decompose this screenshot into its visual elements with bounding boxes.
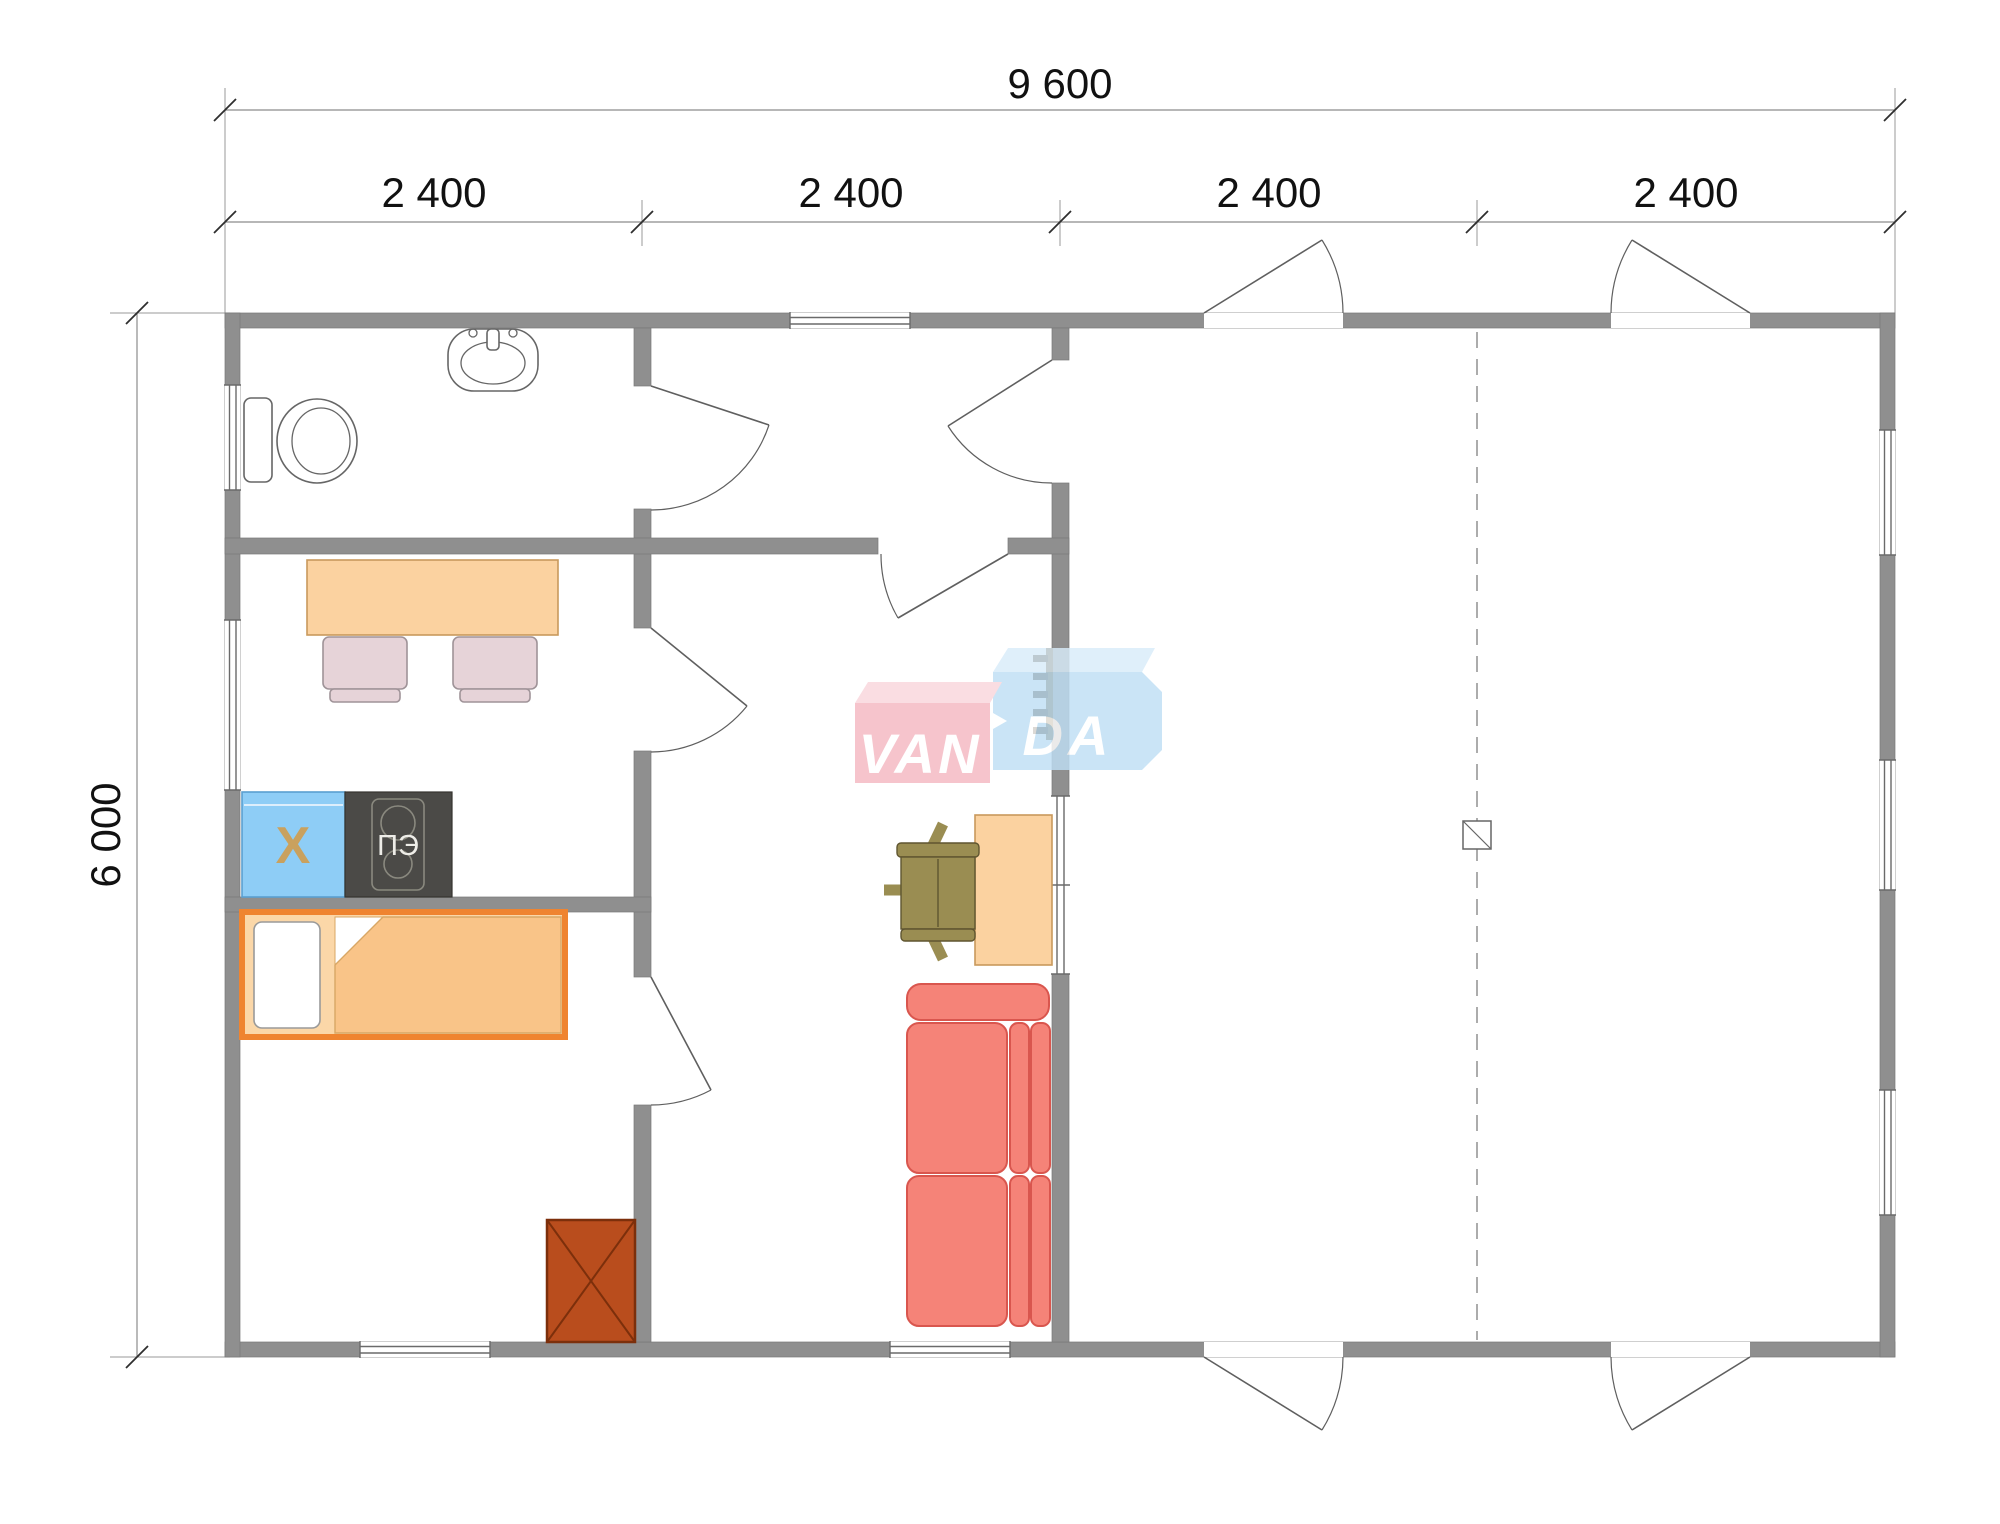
dim-module-4-label: 2 400 xyxy=(1633,169,1738,216)
interior-wall-cd-seg2 xyxy=(1008,538,1069,554)
toilet xyxy=(244,398,357,483)
wardrobe xyxy=(547,1220,635,1342)
dim-total-height-label: 6 000 xyxy=(82,782,129,887)
sink xyxy=(448,329,538,391)
dim-module-1-label: 2 400 xyxy=(381,169,486,216)
dining-chair-2 xyxy=(453,637,537,702)
interior-wall-cd-seg1 xyxy=(225,538,878,554)
dim-module-3-label: 2 400 xyxy=(1216,169,1321,216)
interior-wall-a-seg2 xyxy=(634,509,651,628)
dim-module-2-label: 2 400 xyxy=(798,169,903,216)
stove: ПЭ xyxy=(345,792,452,897)
door-kitchen xyxy=(651,628,747,752)
blanket xyxy=(335,917,561,1033)
stove-label: ПЭ xyxy=(377,830,419,862)
logo-text-left: VAN xyxy=(858,722,981,785)
dim-total-width-label: 9 600 xyxy=(1007,60,1112,107)
logo-text-right: DA xyxy=(1023,704,1114,767)
fridge-label: Х xyxy=(276,817,311,875)
support-post xyxy=(1463,821,1491,849)
door-hall-to-right-room xyxy=(948,360,1052,483)
floor-plan-canvas: 9 600 2 400 2 400 2 400 2 400 6 000 xyxy=(0,0,2000,1524)
watermark-logo: VAN DA xyxy=(855,648,1162,785)
door-top-left xyxy=(1204,240,1343,313)
desk xyxy=(975,815,1052,965)
door-bottom-right xyxy=(1611,1357,1750,1430)
interior-wall-b-seg1 xyxy=(1052,328,1069,360)
office-chair xyxy=(884,824,979,959)
furniture-layer: Х ПЭ xyxy=(242,329,1491,1342)
fridge: Х xyxy=(242,792,345,897)
sofa xyxy=(907,984,1050,1326)
floor-plan-svg: 9 600 2 400 2 400 2 400 2 400 6 000 xyxy=(0,0,2000,1524)
bed xyxy=(242,912,565,1037)
door-bedroom xyxy=(651,977,711,1105)
interior-wall-a-seg1 xyxy=(634,328,651,386)
interior-wall-a-seg4 xyxy=(634,1105,651,1342)
door-bathroom xyxy=(651,386,769,510)
door-hall-to-living xyxy=(881,554,1008,618)
door-top-right xyxy=(1611,240,1750,313)
interior-wall-a-seg3 xyxy=(634,751,651,977)
door-bottom-left xyxy=(1204,1357,1343,1430)
pillow xyxy=(254,922,320,1028)
dining-table xyxy=(307,560,558,635)
interior-wall-b-seg3 xyxy=(1052,974,1069,1342)
window-wall-b-living xyxy=(1051,796,1070,974)
dining-chair-1 xyxy=(323,637,407,702)
